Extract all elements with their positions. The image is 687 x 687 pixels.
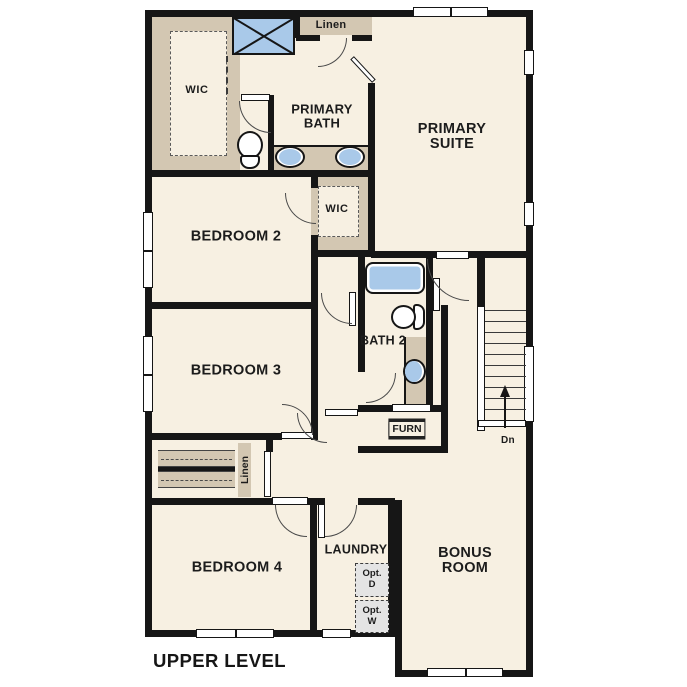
toilet-room-door-leaf <box>241 94 270 101</box>
stair-tread <box>485 332 526 333</box>
hall-linen-shelf-bottom <box>158 471 235 488</box>
furnace-label: FURN <box>388 421 425 437</box>
bedroom4-door-leaf <box>272 497 308 505</box>
optional-washer-box: Opt. W <box>355 600 389 633</box>
stair-tread <box>485 310 526 311</box>
stair-tread <box>485 354 526 355</box>
window-bedroom4-bottom <box>196 629 274 638</box>
wall-laundry-right <box>388 498 395 637</box>
shower <box>232 17 295 55</box>
window-bonus-bottom <box>427 668 503 677</box>
plan-title: UPPER LEVEL <box>153 650 286 672</box>
wall-bonus-left <box>395 500 402 677</box>
wall-linen-bottom-right <box>352 35 372 41</box>
stair-dn-label: Dn <box>501 436 515 447</box>
furnace-door-leaf <box>392 404 431 412</box>
wall-bath-suite <box>368 83 375 177</box>
stair-railing-bottom <box>478 420 526 427</box>
wic-shower-cased-opening <box>226 56 228 94</box>
floor-plan-canvas: Dn Opt. D Opt. W PRIMARY SUITE PRIMARY B… <box>0 0 687 687</box>
bedroom4-label: BEDROOM 4 <box>192 560 283 575</box>
wall-wic2-left-stub-top <box>311 173 318 188</box>
wall-furn-bottom <box>358 446 448 453</box>
wall-wic-bath-bottom <box>145 170 373 177</box>
stair-tread <box>485 343 526 344</box>
wall-linen-bottom-left <box>296 35 320 41</box>
bath2-tub <box>365 262 425 294</box>
wall-furn-top-left <box>358 405 393 412</box>
hall-linen-door-leaf <box>264 451 271 497</box>
wall-wic2-left-stub-bottom <box>311 235 318 250</box>
optional-dryer-box: Opt. D <box>355 563 389 597</box>
optional-dryer-label-line2: D <box>369 580 376 591</box>
hall-linen-label: Linen <box>239 456 251 484</box>
wall-corridor-right <box>441 305 448 453</box>
stair-direction-line <box>504 397 506 428</box>
window-bedroom3-left <box>143 336 153 412</box>
optional-washer-label-line2: W <box>368 617 377 628</box>
wall-stairwell-left-top <box>477 251 485 306</box>
bath2-sink-basin <box>405 361 422 382</box>
primary-suite-door-leaf <box>436 251 469 259</box>
bath2-label: BATH 2 <box>359 334 407 347</box>
bedroom2-label: BEDROOM 2 <box>191 229 282 244</box>
primary-bath-label: PRIMARY BATH <box>279 102 365 129</box>
primary-sink-left-basin <box>279 149 301 165</box>
primary-suite-label: PRIMARY SUITE <box>409 122 495 152</box>
wall-wic2-suite <box>368 170 375 257</box>
wall-bed3-bottom <box>145 433 282 440</box>
stair-tread <box>485 376 526 377</box>
bonus-room-label: BONUS ROOM <box>425 546 505 576</box>
stair-tread <box>485 321 526 322</box>
optional-washer-label-line1: Opt. <box>363 606 382 617</box>
laundry-door-leaf <box>318 504 325 538</box>
window-laundry-bottom <box>322 629 351 638</box>
wall-outer-left <box>145 10 152 637</box>
window-bedroom2-left <box>143 212 153 288</box>
hall-door-leaf <box>325 409 358 416</box>
wall-wic2-bottom <box>311 250 375 257</box>
window-primary-suite-right-upper <box>524 50 534 75</box>
wall-outer-right <box>526 10 533 677</box>
wall-bath2-left <box>358 251 365 372</box>
wall-bed4-top <box>145 498 273 505</box>
window-primary-suite-top <box>413 7 488 17</box>
primary-sink-right-basin <box>339 149 361 165</box>
stair-tread <box>485 365 526 366</box>
window-primary-suite-right-lower <box>524 202 534 226</box>
wall-bed4-laundry <box>310 498 317 637</box>
linen-upper-label: Linen <box>316 20 347 32</box>
bedroom2-wic-label: WIC <box>325 204 348 216</box>
laundry-label: LAUNDRY <box>325 543 388 556</box>
wall-bed2-bottom <box>145 302 318 309</box>
stair-direction-arrow <box>500 385 510 397</box>
bedroom3-label: BEDROOM 3 <box>191 363 282 378</box>
hall-linen-shelf-top <box>158 450 235 467</box>
wall-bed23-right <box>311 250 318 440</box>
bath2-toilet-bowl <box>391 305 416 329</box>
primary-wic-label: WIC <box>185 85 208 97</box>
window-stairwell-right <box>524 346 534 422</box>
wall-laundry-top-right <box>358 498 395 505</box>
stair-railing-left <box>477 306 485 431</box>
